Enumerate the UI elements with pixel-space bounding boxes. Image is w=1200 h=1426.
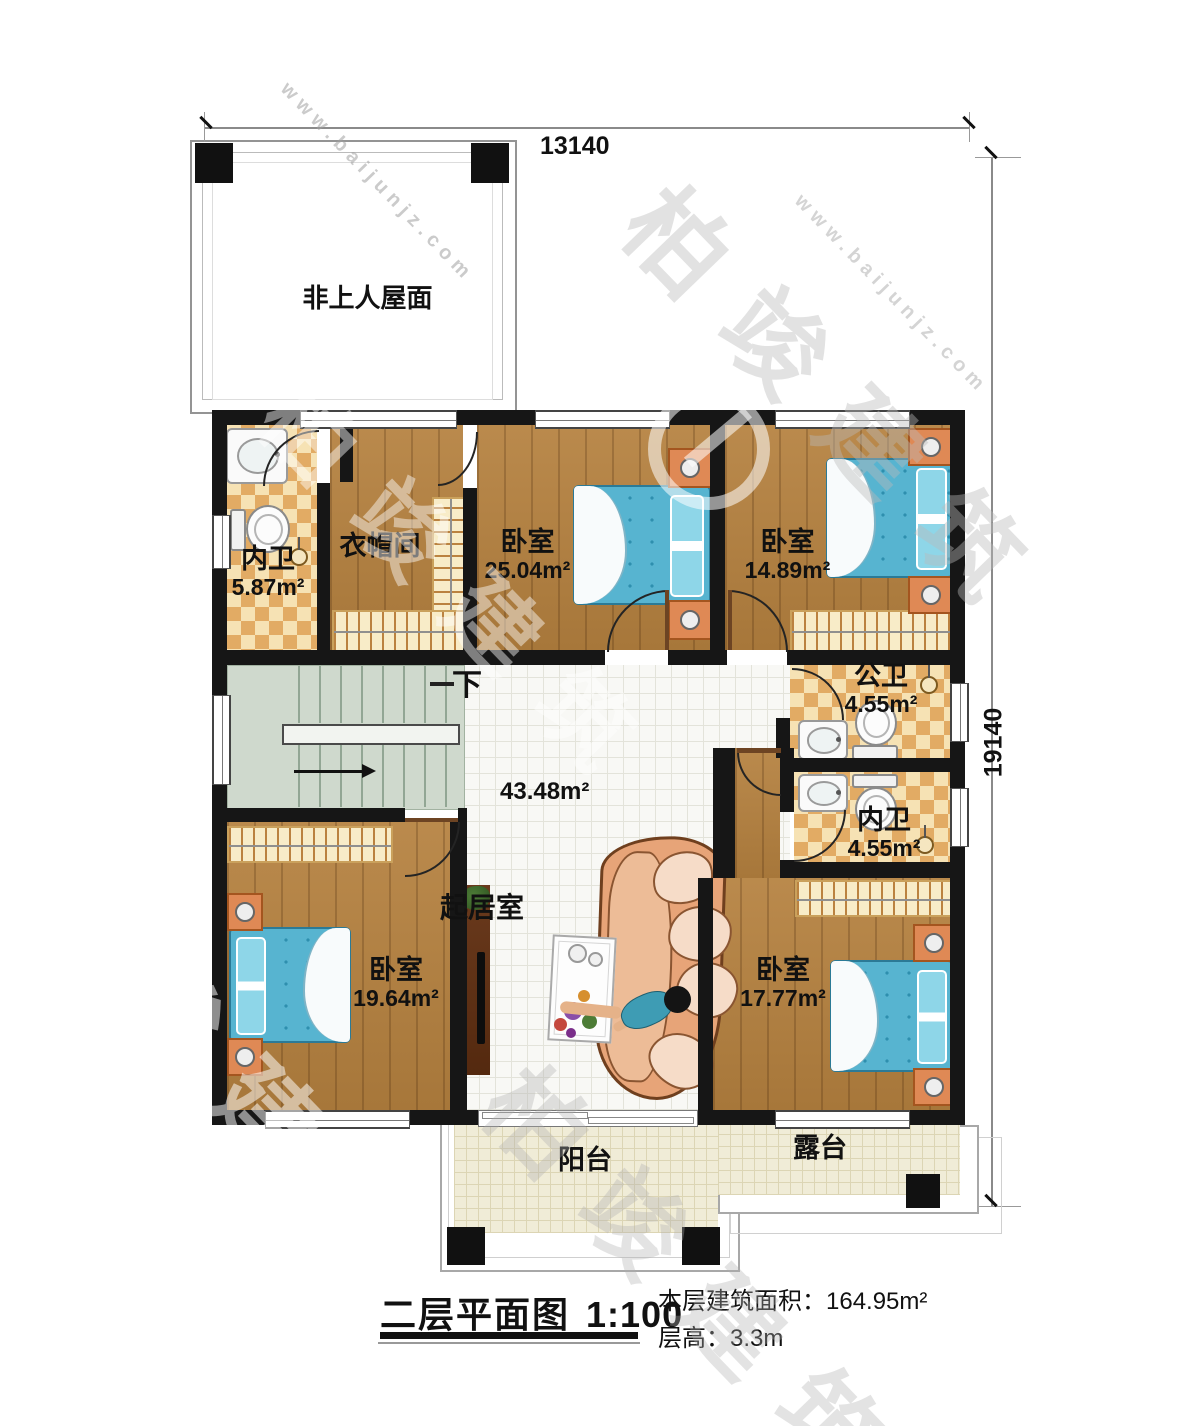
room-label-cloakroom: 衣帽间 — [322, 532, 438, 562]
stair-direction-arrow — [294, 770, 364, 773]
watermark-site: www.baijunjz.com — [32, 880, 178, 1128]
window — [950, 683, 969, 742]
floor-plan-canvas: 13140 19140 — [0, 0, 1200, 1426]
room-label-bedroom: 卧室 17.77m² — [713, 956, 853, 1011]
dimension-top-value: 13140 — [540, 132, 610, 161]
floor-area-row: 本层建筑面积：164.95m² — [658, 1283, 927, 1320]
window — [535, 410, 670, 429]
wardrobe — [795, 880, 952, 917]
balcony-floor — [454, 1125, 718, 1233]
door-leaf — [405, 818, 458, 822]
nightstand — [913, 924, 954, 962]
wardrobe — [227, 826, 393, 863]
wall — [780, 862, 950, 878]
plate — [568, 944, 587, 963]
nightstand — [227, 1038, 263, 1076]
nightstand — [227, 893, 263, 931]
dimension-guide — [975, 157, 1021, 158]
dimension-guide — [969, 112, 970, 142]
window — [265, 1110, 410, 1129]
wall — [227, 650, 605, 665]
drawing-info: 本层建筑面积：164.95m² 层高：3.3m — [658, 1283, 927, 1357]
wall — [780, 748, 794, 812]
wall — [698, 878, 713, 1110]
roof-label: 非上人屋面 — [285, 278, 450, 315]
room-label-bedroom: 卧室 25.04m² — [455, 528, 600, 583]
room-label-bathroom: 公卫 4.55m² — [811, 662, 951, 717]
door-leaf — [665, 590, 669, 650]
window — [212, 695, 231, 785]
flower — [566, 1028, 576, 1038]
column — [682, 1227, 720, 1265]
wall — [950, 410, 965, 1125]
living-room-label: 起居室 — [440, 886, 600, 926]
stair-treads — [298, 743, 463, 807]
wall — [790, 758, 950, 772]
stair-treads — [298, 666, 463, 723]
dimension-line-right — [991, 158, 993, 1206]
stair-rail — [282, 724, 460, 745]
nightstand — [668, 600, 712, 640]
watermark-site: www.baijunjz.com — [789, 190, 992, 399]
door-arc — [438, 432, 478, 486]
tv — [477, 952, 485, 1044]
drawing-title: 二层平面图1:100 — [380, 1286, 683, 1338]
room-label-bathroom: 内卫 4.55m² — [814, 806, 954, 861]
room-label-bedroom: 卧室 19.64m² — [326, 956, 466, 1011]
closet — [332, 610, 467, 652]
title-underline — [380, 1332, 638, 1339]
nightstand — [908, 576, 954, 614]
wardrobe — [790, 610, 952, 652]
dimension-guide — [204, 112, 205, 142]
sliding-door-panel — [588, 1117, 694, 1124]
plate — [588, 952, 603, 967]
room-label-terrace: 露台 — [765, 1134, 875, 1164]
column — [906, 1174, 940, 1208]
sink — [798, 720, 848, 760]
room-label-bathroom: 内卫 5.87m² — [205, 545, 331, 600]
nightstand — [668, 448, 712, 488]
column — [471, 143, 509, 183]
room-label-bedroom: 卧室 14.89m² — [715, 528, 860, 583]
flower — [554, 1018, 567, 1031]
wall — [713, 748, 735, 878]
nightstand — [908, 428, 954, 466]
person-head — [664, 986, 691, 1013]
window — [775, 1110, 910, 1129]
stairs-down-label: 下 — [452, 660, 482, 704]
column — [195, 143, 233, 183]
wall — [227, 808, 405, 822]
dimension-right-value: 19140 — [980, 701, 1009, 785]
dimension-line-top — [205, 127, 970, 129]
window — [775, 410, 910, 429]
title-underline-thin — [378, 1342, 640, 1344]
wall — [458, 808, 467, 822]
title-text: 二层平面图 — [380, 1294, 570, 1335]
flower — [578, 990, 590, 1002]
door-leaf — [737, 748, 781, 753]
column — [447, 1227, 485, 1265]
floor-height-row: 层高：3.3m — [658, 1320, 927, 1357]
stair-arrow-head — [362, 764, 376, 778]
wall — [340, 425, 353, 482]
sliding-door-panel — [482, 1112, 588, 1119]
room-label-balcony: 阳台 — [530, 1146, 640, 1176]
stairs-down-mark — [430, 682, 454, 686]
door-leaf — [728, 590, 732, 650]
living-room-area: 43.48m² — [500, 778, 660, 806]
nightstand — [913, 1068, 954, 1106]
window — [300, 410, 457, 429]
wall — [668, 650, 727, 665]
